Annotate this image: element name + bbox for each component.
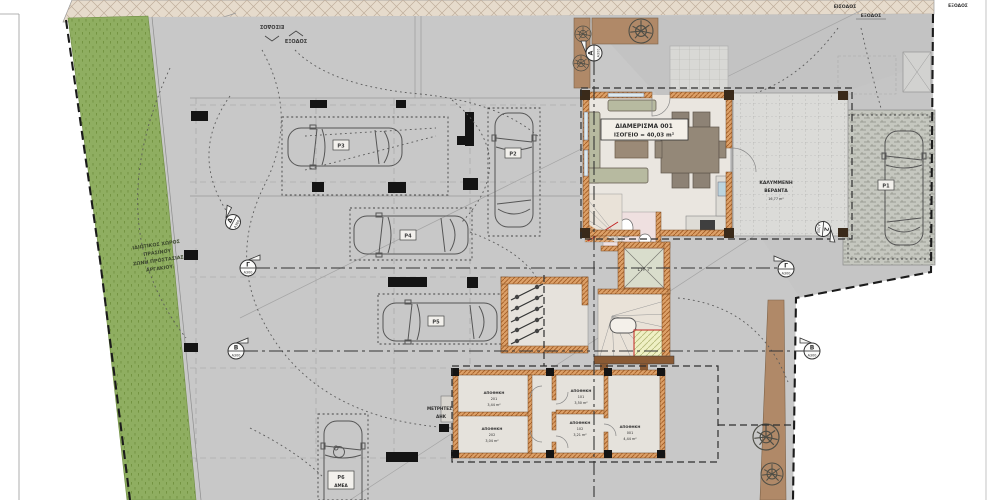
marker-sheet: Α300 xyxy=(232,354,241,358)
room-number: 101 xyxy=(578,395,584,399)
room-area: 3,50 m² xyxy=(574,401,588,405)
marker-letter: Γ xyxy=(246,262,250,269)
marker-letter: Β xyxy=(234,345,239,352)
p3-label: P3 xyxy=(337,144,345,150)
parking-label-p3: P3 xyxy=(333,140,349,150)
parking-label-p5: P5 xyxy=(428,316,444,326)
parking-label-p4: P4 xyxy=(400,230,416,240)
room-number: 201 xyxy=(491,397,497,401)
room-name: ΑΠΟΘΗΚΗ xyxy=(482,427,503,431)
room-number: 102 xyxy=(577,427,583,431)
marker-letter: Γ xyxy=(784,263,788,270)
entrance-left-label: ΕΙΣΟΔΟΣ xyxy=(259,23,284,29)
meters-label-line1: ΜΕΤΡΗΤΕΣ xyxy=(427,406,452,411)
marker-sheet: Α300 xyxy=(816,224,821,233)
window xyxy=(584,112,588,140)
plan-canvas: ΙΔΙΩΤΙΚΟΣ ΧΩΡΟΣ ΠΡΑΣΙΝΟΥ ΖΩΝΗ ΠΡΟΣΤΑΣΙΑΣ… xyxy=(0,0,1000,500)
window xyxy=(584,150,588,176)
entrance-right-label: ΕΙΣΟΔΟΣ xyxy=(834,4,857,10)
marker-letter: Β xyxy=(810,345,815,352)
room-name: ΑΠΟΘΗΚΗ xyxy=(571,389,592,393)
exit-far-right-label: ΕΞΟΔΟΣ xyxy=(948,3,968,9)
section-marker-beta-right: Β Α300 xyxy=(800,338,820,359)
veranda-label-line1: ΚΑΛΥΜΜΕΝΗ xyxy=(759,180,793,186)
p5-label: P5 xyxy=(432,320,440,326)
coffee-table xyxy=(615,141,648,158)
marker-sheet: Α300 xyxy=(782,272,791,276)
marker-sheet: Α300 xyxy=(597,49,601,58)
site-plan-drawing: ΙΔΙΩΤΙΚΟΣ ΧΩΡΟΣ ΠΡΑΣΙΝΟΥ ΖΩΝΗ ΠΡΟΣΤΑΣΙΑΣ… xyxy=(0,0,1000,500)
apartment-label: ΔΙΑΜΕΡΙΣΜΑ 001 ΙΣΟΓΕΙΟ = 40,03 m² xyxy=(601,119,688,140)
room-area: 3,04 m² xyxy=(485,439,499,443)
room-area: 3,44 m² xyxy=(487,403,501,407)
apartment-name: ΔΙΑΜΕΡΙΣΜΑ 001 xyxy=(615,123,673,130)
meters-label-line2: ΑΗΚ xyxy=(436,414,447,419)
marker-letter: Α xyxy=(588,50,595,55)
veranda-label-line2: ΒΕΡΑΝΤΑ xyxy=(764,188,788,194)
room-name: ΑΠΟΘΗΚΗ xyxy=(570,421,591,425)
exit-right-label: ΕΞΟΔΟΣ xyxy=(861,13,882,19)
room-area: 3,21 m² xyxy=(573,433,587,437)
covered-veranda xyxy=(733,93,848,236)
room-name: ΑΠΟΘΗΚΗ xyxy=(620,425,641,429)
marker-sheet: Α300 xyxy=(808,354,817,358)
marker-letter: 2 xyxy=(822,227,829,232)
exit-left-label: ΕΞΟΔΟΣ xyxy=(285,39,308,45)
storage-block: ΑΠΟΘΗΚΗ 201 3,44 m² ΑΠΟΘΗΚΗ 202 3,04 m² … xyxy=(451,368,665,458)
apartment-area: ΙΣΟΓΕΙΟ = 40,03 m² xyxy=(614,132,675,139)
room-name: ΑΠΟΘΗΚΗ xyxy=(484,391,505,395)
p2-label: P2 xyxy=(509,152,517,158)
p6-amea-label: ΑΜΕΑ xyxy=(334,483,348,488)
stairs-lower xyxy=(594,289,674,374)
veranda-area-label: 16,77 m² xyxy=(768,197,784,201)
marker-sheet: Α300 xyxy=(244,271,253,275)
window xyxy=(608,93,644,97)
room-area: 4,44 m² xyxy=(623,437,637,441)
p6-label: P6 xyxy=(337,475,345,481)
p4-label: P4 xyxy=(404,234,412,240)
stove xyxy=(700,220,715,231)
sink xyxy=(718,182,727,196)
p1-label: P1 xyxy=(882,184,890,190)
room-number: 001 xyxy=(627,431,633,435)
parking-label-p1: P1 xyxy=(878,180,894,190)
room-number: 202 xyxy=(489,433,495,437)
parking-label-p2: P2 xyxy=(505,148,521,158)
